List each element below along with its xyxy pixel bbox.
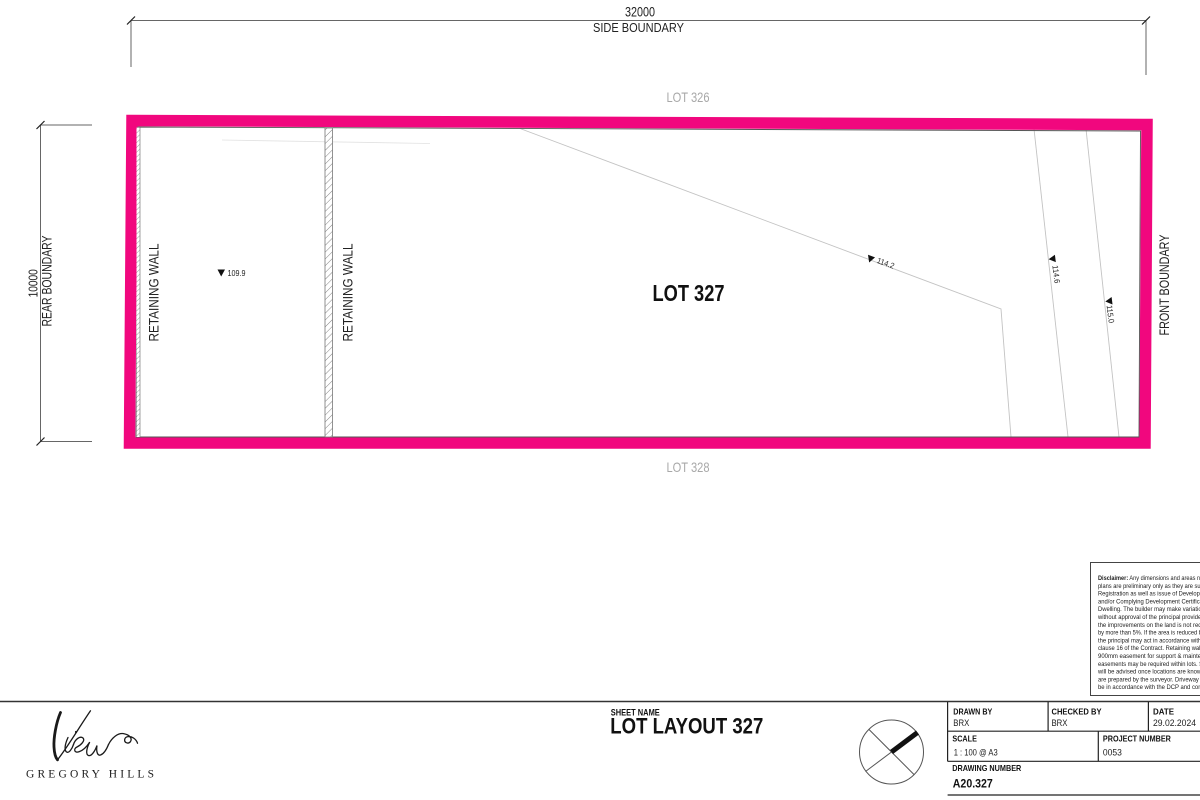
svg-text:without approval of the princi: without approval of the principal provid…: [1097, 614, 1200, 621]
svg-text:BRX: BRX: [953, 718, 969, 728]
svg-text:DRAWN BY: DRAWN BY: [953, 707, 992, 717]
svg-text:LOT 327: LOT 327: [653, 280, 725, 306]
svg-text:SIDE BOUNDARY: SIDE BOUNDARY: [593, 20, 684, 35]
svg-text:LOT 326: LOT 326: [667, 89, 710, 105]
svg-text:will be advised once locations: will be advised once locations are known…: [1097, 669, 1200, 676]
svg-text:and/or Complying Development C: and/or Complying Development Certificate…: [1098, 598, 1200, 605]
svg-text:10000: 10000: [25, 269, 40, 297]
svg-text:Disclaimer: Any dimensions and: Disclaimer: Any dimensions and areas not…: [1098, 575, 1200, 582]
svg-text:32000: 32000: [625, 4, 655, 20]
svg-text:REAR BOUNDARY: REAR BOUNDARY: [40, 236, 55, 327]
svg-text:LOT LAYOUT 327: LOT LAYOUT 327: [610, 714, 763, 739]
svg-text:DATE: DATE: [1153, 707, 1174, 717]
svg-text:be in accordance with the DCP: be in accordance with the DCP and consen: [1098, 684, 1200, 691]
svg-text:SCALE: SCALE: [952, 734, 977, 744]
svg-text:plans are preliminary only as: plans are preliminary only as they are s…: [1098, 583, 1200, 590]
svg-text:by more than 5%. If the area i: by more than 5%. If the area is reduced …: [1098, 630, 1200, 637]
svg-text:1 : 100 @ A3: 1 : 100 @ A3: [954, 748, 998, 758]
svg-text:Dwelling. The builder may make: Dwelling. The builder may make variation…: [1098, 606, 1200, 613]
svg-text:RETAINING WALL: RETAINING WALL: [341, 243, 356, 341]
svg-text:are prepared by the surveyor.: are prepared by the surveyor. Driveway l…: [1098, 676, 1200, 683]
svg-text:0053: 0053: [1103, 747, 1122, 757]
svg-text:FRONT BOUNDARY: FRONT BOUNDARY: [1157, 235, 1172, 336]
svg-text:900mm easement for support & m: 900mm easement for support & maintenan: [1098, 653, 1200, 660]
svg-text:109.9: 109.9: [228, 269, 246, 278]
svg-text:the improvements on the land i: the improvements on the land is not redu…: [1098, 622, 1200, 629]
svg-text:clause 16 of the Contract. Ret: clause 16 of the Contract. Retaining wal…: [1098, 645, 1200, 652]
svg-text:the principal may act in accor: the principal may act in accordance with…: [1098, 637, 1200, 644]
svg-text:PROJECT NUMBER: PROJECT NUMBER: [1103, 733, 1171, 743]
svg-text:easements may be required with: easements may be required within lots. S…: [1098, 661, 1200, 668]
svg-text:29.02.2024: 29.02.2024: [1153, 718, 1196, 728]
svg-text:RETAINING WALL: RETAINING WALL: [147, 243, 162, 341]
svg-text:CHECKED BY: CHECKED BY: [1052, 707, 1102, 717]
svg-text:DRAWING NUMBER: DRAWING NUMBER: [952, 763, 1021, 773]
svg-text:BRX: BRX: [1052, 718, 1068, 728]
svg-text:LOT 328: LOT 328: [667, 459, 710, 475]
svg-text:A20.327: A20.327: [953, 777, 993, 791]
svg-text:Registration as well as issue: Registration as well as issue of Develop…: [1098, 591, 1200, 598]
